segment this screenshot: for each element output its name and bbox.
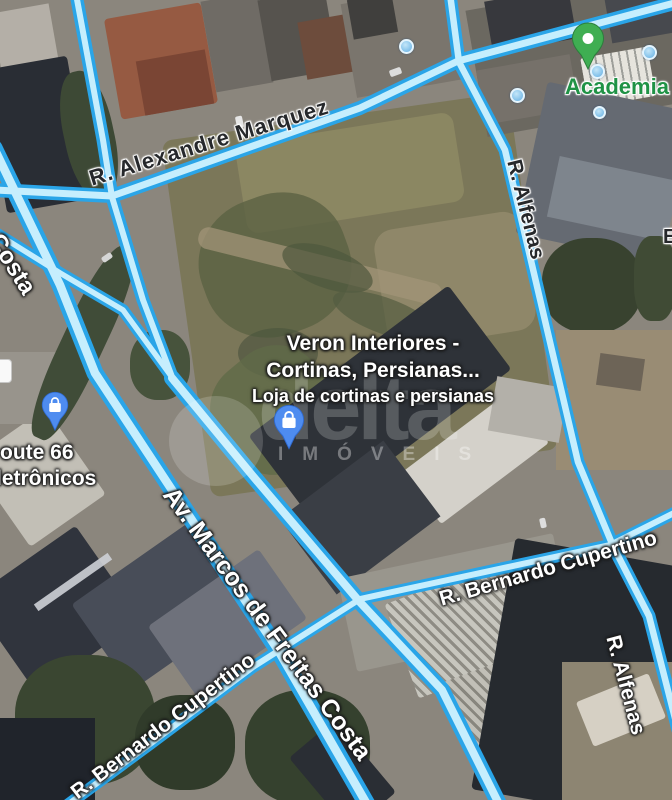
road-label-edge-partial: E — [663, 226, 672, 249]
veron-shopping-pin blue-shopping-pin-icon[interactable] — [273, 404, 305, 452]
poi-dot-icon[interactable] — [593, 106, 606, 119]
map-canvas[interactable]: delta IMÓVEIS R. Alexandre Marquez R. Al… — [0, 0, 672, 800]
veron-title-line2[interactable]: Cortinas, Persianas... — [248, 357, 498, 384]
veron-label-block[interactable]: Veron Interiores - Cortinas, Persianas..… — [248, 330, 498, 408]
academia-place-pin green-place-pin-icon[interactable] — [571, 22, 605, 72]
route66-label-line1[interactable]: oute 66 — [0, 441, 74, 465]
route66-shopping-pin blue-shopping-pin-icon[interactable] — [41, 390, 69, 434]
poi-dot-icon[interactable] — [399, 39, 414, 54]
academia-label[interactable]: Academia — [565, 74, 669, 100]
poi-dot-icon[interactable] — [642, 45, 657, 60]
route66-label-line2[interactable]: letrônicos — [0, 467, 96, 491]
partial-poi-card-icon[interactable] — [0, 359, 12, 383]
poi-dot-icon[interactable] — [510, 88, 525, 103]
veron-title-line1[interactable]: Veron Interiores - — [248, 330, 498, 357]
